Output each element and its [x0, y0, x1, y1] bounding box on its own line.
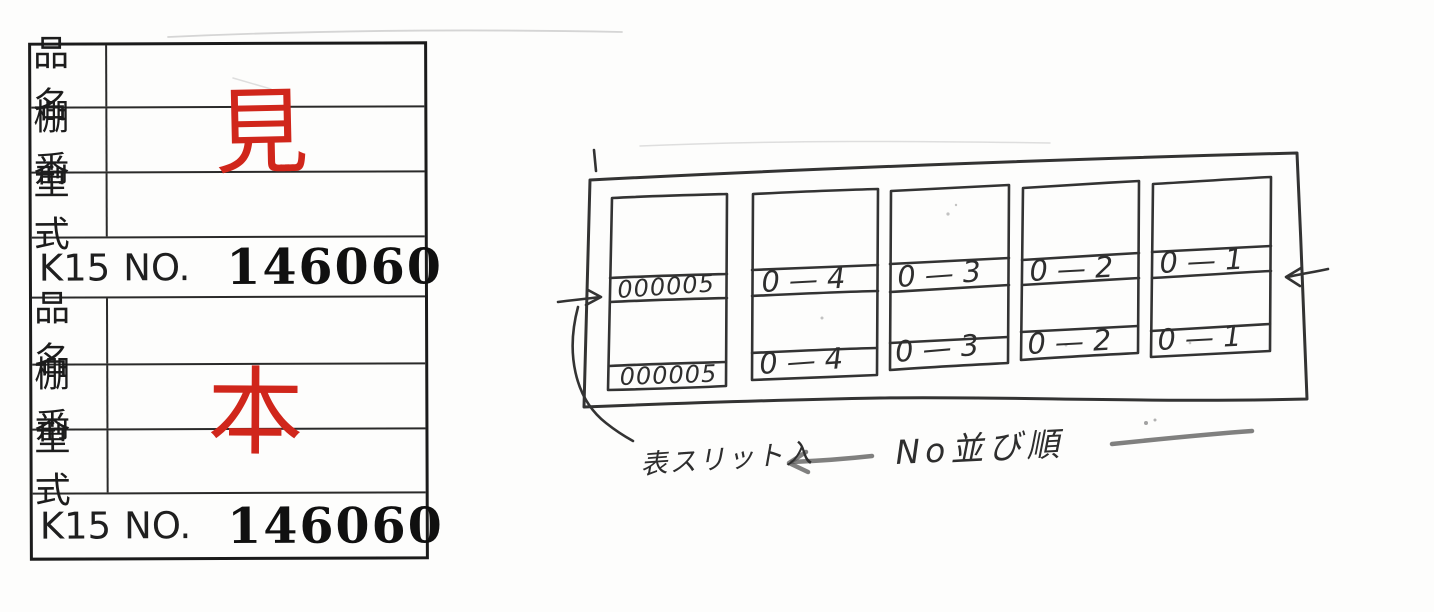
scanned-document: 000005 000005 0—4 0—4 0—3 0—3 0— [0, 0, 1434, 612]
box-bottom-label: 0—4 [758, 341, 853, 381]
pencil-ghost-line [640, 141, 1050, 146]
box-middle-label: 0—4 [761, 260, 856, 299]
right-arrow-icon [1286, 268, 1328, 286]
dash-stroke [1112, 431, 1252, 444]
sketch-box-1: 000005 000005 [608, 194, 727, 391]
row-label: 型式 [32, 430, 108, 492]
speck [821, 317, 824, 320]
box-bottom-label: 0—1 [1157, 318, 1252, 357]
box-bottom-label: 000005 [619, 360, 718, 391]
red-stamp-hon: 本 [170, 364, 341, 461]
scan-line [168, 30, 622, 37]
box-bottom-label: 0—2 [1027, 322, 1122, 361]
box-middle-label: 0—3 [896, 254, 991, 294]
box-middle-label: 0—2 [1029, 249, 1124, 288]
no-label: NO. [124, 504, 191, 547]
speck [955, 204, 957, 206]
speck [946, 212, 949, 215]
box-middle-label: 0—1 [1159, 241, 1254, 280]
red-stamp-mi: 見 [175, 85, 347, 183]
sketch-box-3: 0—3 0—3 [890, 185, 1009, 370]
sketch-box-5: 0—1 0—1 [1151, 177, 1271, 357]
order-note: No並び順 [894, 424, 1065, 472]
ink-dot [1154, 419, 1157, 422]
ink-dot [1144, 421, 1148, 425]
code-label: K15 [40, 504, 112, 547]
sketch-box-2: 0—4 0—4 [752, 189, 878, 381]
parts-label-form: 品名 棚番 型式 K15 NO. 146060 品名 棚番 型式 [28, 41, 429, 560]
row-value [108, 297, 425, 363]
box-bottom-label: 0—3 [894, 327, 990, 369]
serial-number: 146060 [227, 496, 444, 555]
no-label: NO. [123, 246, 190, 289]
sketch-box-4: 0—2 0—2 [1021, 181, 1139, 361]
top-tick [594, 150, 596, 171]
slit-note: 表スリット入 [639, 438, 815, 481]
row-label: 型式 [32, 173, 108, 236]
left-arrow-icon [558, 290, 601, 305]
serial-number: 146060 [226, 237, 443, 296]
